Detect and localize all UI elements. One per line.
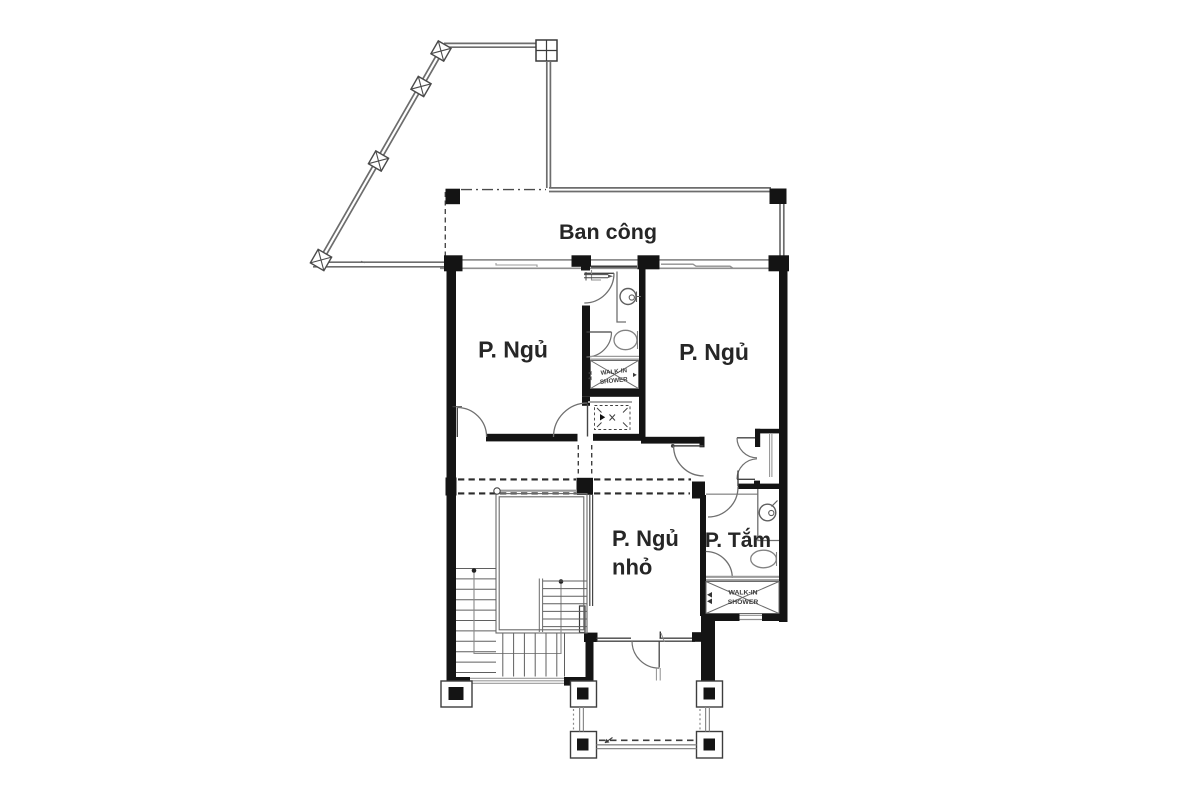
svg-text:SHOWER: SHOWER: [728, 599, 759, 606]
svg-text:nhỏ: nhỏ: [612, 555, 652, 580]
svg-text:P. Ngủ: P. Ngủ: [478, 337, 548, 363]
svg-text:Ban công: Ban công: [559, 220, 657, 244]
svg-text:P. Tắm: P. Tắm: [705, 528, 771, 552]
svg-text:P. Ngủ: P. Ngủ: [679, 339, 749, 365]
svg-text:WALK-IN: WALK-IN: [728, 590, 757, 597]
svg-text:P. Ngủ: P. Ngủ: [612, 526, 679, 551]
